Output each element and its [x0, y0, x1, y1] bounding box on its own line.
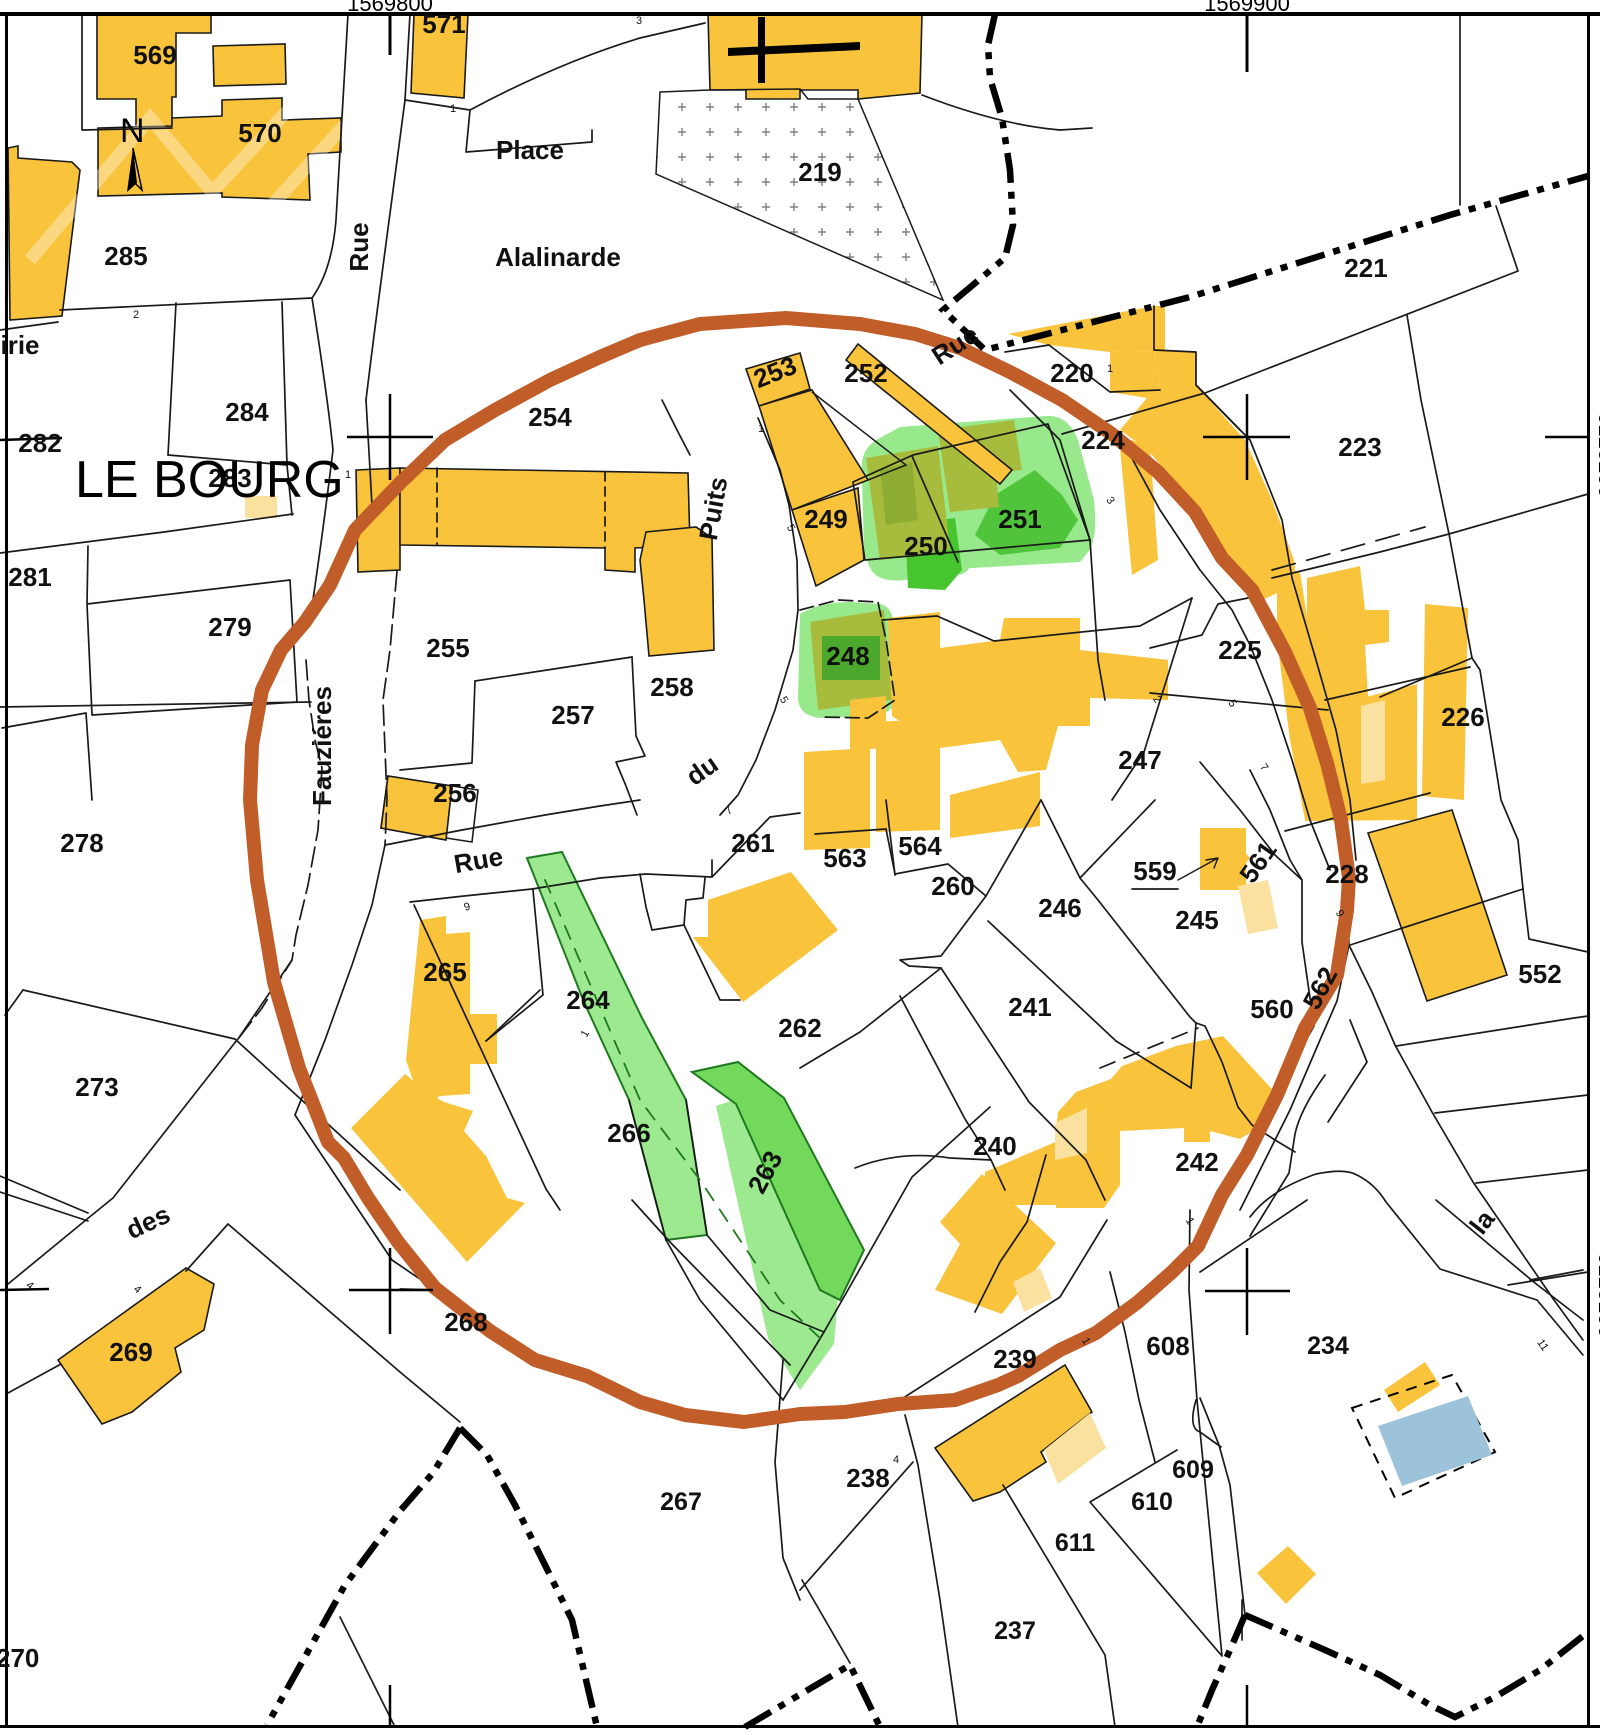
svg-text:560: 560: [1250, 994, 1293, 1024]
svg-text:269: 269: [109, 1337, 152, 1367]
svg-text:559: 559: [1133, 856, 1176, 886]
svg-text:254: 254: [528, 402, 572, 432]
svg-text:260: 260: [931, 871, 974, 901]
svg-text:223: 223: [1338, 432, 1381, 462]
svg-text:609: 609: [1172, 1456, 1214, 1484]
svg-text:248: 248: [826, 641, 869, 671]
svg-text:LE BOURG: LE BOURG: [75, 451, 344, 509]
svg-text:237: 237: [994, 1617, 1036, 1645]
svg-text:570: 570: [238, 118, 281, 148]
svg-text:1569900: 1569900: [1204, 0, 1290, 16]
svg-text:261: 261: [731, 828, 774, 858]
svg-text:273: 273: [75, 1072, 118, 1102]
svg-text:238: 238: [846, 1463, 889, 1493]
svg-text:241: 241: [1008, 992, 1051, 1022]
svg-text:264: 264: [566, 985, 610, 1015]
svg-text:246: 246: [1038, 893, 1081, 923]
svg-text:242: 242: [1175, 1147, 1218, 1177]
svg-text:219: 219: [798, 157, 841, 187]
svg-text:285: 285: [104, 241, 147, 271]
svg-text:564: 564: [898, 831, 942, 861]
svg-text:245: 245: [1175, 905, 1218, 935]
svg-text:3: 3: [636, 15, 642, 27]
svg-text:258: 258: [650, 672, 693, 702]
svg-text:256: 256: [433, 778, 476, 808]
svg-text:6123100: 6123100: [1594, 1252, 1600, 1338]
svg-text:4: 4: [893, 1454, 899, 1466]
svg-text:251: 251: [998, 504, 1041, 534]
svg-text:267: 267: [660, 1488, 702, 1516]
svg-text:226: 226: [1441, 702, 1484, 732]
svg-text:Place: Place: [496, 135, 564, 165]
svg-text:Fauziéres: Fauziéres: [307, 686, 337, 806]
svg-text:282: 282: [18, 428, 61, 458]
svg-text:6123200: 6123200: [1594, 412, 1600, 498]
svg-text:234: 234: [1307, 1332, 1349, 1360]
svg-text:Rue: Rue: [344, 222, 374, 271]
svg-text:225: 225: [1218, 635, 1261, 665]
svg-text:1: 1: [345, 469, 351, 481]
svg-text:610: 610: [1131, 1488, 1173, 1516]
svg-text:569: 569: [133, 40, 176, 70]
svg-text:221: 221: [1344, 253, 1387, 283]
svg-text:Alalinarde: Alalinarde: [495, 242, 621, 272]
svg-text:224: 224: [1081, 425, 1125, 455]
svg-text:N: N: [120, 112, 145, 150]
svg-text:1: 1: [1107, 363, 1113, 375]
svg-text:irie: irie: [0, 330, 39, 360]
svg-text:279: 279: [208, 612, 251, 642]
svg-text:240: 240: [973, 1131, 1016, 1161]
svg-text:255: 255: [426, 633, 469, 663]
svg-text:552: 552: [1518, 959, 1561, 989]
svg-text:278: 278: [60, 828, 103, 858]
svg-text:265: 265: [423, 957, 466, 987]
svg-text:247: 247: [1118, 745, 1161, 775]
svg-text:220: 220: [1050, 358, 1093, 388]
svg-text:257: 257: [551, 700, 594, 730]
svg-text:266: 266: [607, 1118, 650, 1148]
svg-text:268: 268: [444, 1307, 487, 1337]
svg-text:252: 252: [844, 358, 887, 388]
svg-text:611: 611: [1055, 1529, 1095, 1557]
svg-text:571: 571: [422, 9, 465, 39]
svg-text:1: 1: [758, 423, 764, 435]
svg-text:281: 281: [8, 562, 51, 592]
svg-text:249: 249: [804, 504, 847, 534]
svg-text:228: 228: [1325, 859, 1368, 889]
svg-text:284: 284: [225, 397, 269, 427]
svg-text:270: 270: [0, 1643, 39, 1673]
svg-text:563: 563: [823, 843, 866, 873]
svg-text:2: 2: [133, 309, 139, 321]
svg-text:262: 262: [778, 1013, 821, 1043]
svg-text:250: 250: [904, 531, 947, 561]
svg-text:239: 239: [993, 1344, 1036, 1374]
svg-text:1569800: 1569800: [347, 0, 433, 16]
svg-text:608: 608: [1146, 1331, 1189, 1361]
svg-text:1: 1: [450, 103, 456, 115]
